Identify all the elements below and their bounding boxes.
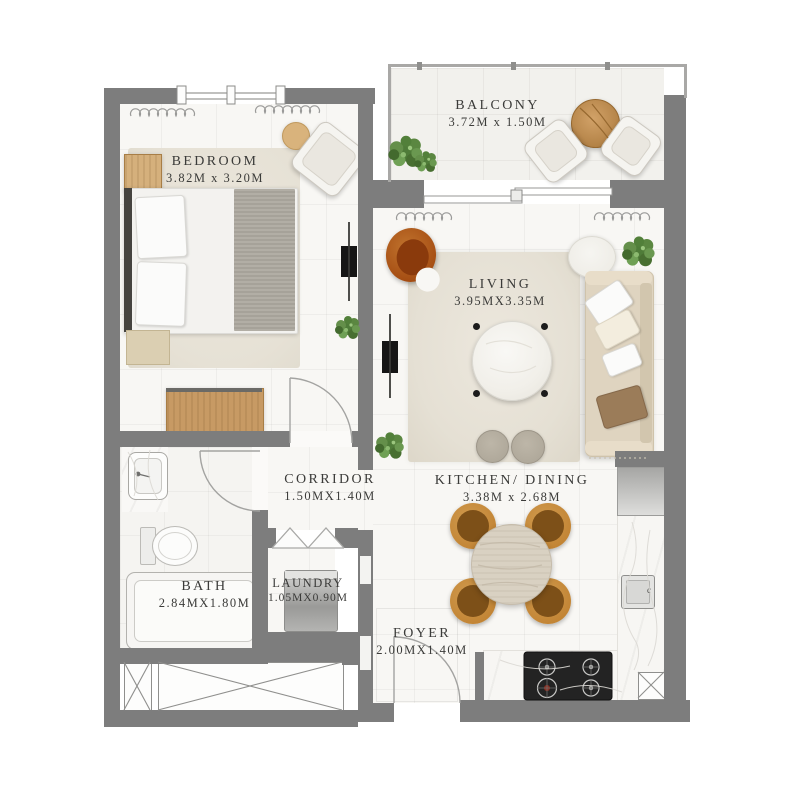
- floor-plan: c: [0, 0, 800, 800]
- rail-post: [511, 62, 516, 70]
- nightstand: [124, 154, 162, 192]
- bath-door-threshold: [252, 447, 268, 510]
- bed-bench: [126, 330, 170, 365]
- bath-sink-icon: [128, 452, 168, 500]
- balcony-rail-right: [684, 64, 687, 98]
- wall-filler: [342, 648, 358, 665]
- sliding-door-icon: [424, 188, 612, 203]
- toilet-icon: [152, 526, 198, 566]
- dresser-back-edge: [166, 388, 262, 392]
- wall-foyer-bottom: [358, 703, 394, 722]
- wall-top-right: [281, 88, 375, 104]
- bed-pillow: [135, 261, 187, 327]
- bathtub-icon: [126, 572, 262, 650]
- living-tv-icon: [382, 341, 398, 373]
- bed-pillow: [134, 195, 187, 260]
- wall-bottom-right: [460, 700, 690, 722]
- wall-bedroom-living: [358, 104, 373, 470]
- bedroom-window-icon: [177, 86, 285, 104]
- sink-marking: c: [647, 585, 651, 595]
- wall-bedroom-corridor: [352, 431, 373, 447]
- wall-laundry-stub-left: [252, 528, 276, 548]
- wall-bottom-left: [104, 710, 358, 727]
- foyer-boundary: [376, 608, 458, 702]
- bifold-door-icon: [272, 528, 344, 548]
- kitchen-sink-icon: c: [621, 575, 655, 609]
- table-leg: [541, 323, 548, 330]
- living-pouf: [511, 430, 545, 464]
- coffee-table: [472, 321, 552, 401]
- wall-left-outer: [104, 88, 120, 727]
- bedroom-tv-icon: [341, 246, 357, 277]
- wall-balcony-bottom-right: [610, 180, 664, 208]
- service-shaft: [158, 662, 344, 712]
- balcony-rail-top: [388, 64, 686, 67]
- foyer-wall-niche: [360, 556, 371, 584]
- service-shaft: [124, 662, 152, 712]
- washing-machine-icon: [284, 570, 338, 632]
- rail-post: [417, 62, 422, 70]
- living-pouf: [476, 430, 509, 463]
- table-leg: [473, 390, 480, 397]
- service-shaft: [638, 672, 666, 700]
- bedroom-door-threshold: [290, 431, 352, 447]
- wall-laundry-stub-right: [335, 528, 358, 548]
- wall-kitchen-stub: [615, 451, 664, 467]
- wall-balcony-corner: [358, 180, 424, 208]
- bed-headboard: [124, 188, 132, 332]
- table-leg: [473, 323, 480, 330]
- wall-bedroom-bath: [120, 431, 290, 447]
- wall-counter-stub: [475, 652, 484, 702]
- dining-table: [471, 524, 552, 605]
- wall-top-left: [104, 88, 182, 104]
- bed-blanket: [234, 189, 295, 331]
- table-leg: [541, 390, 548, 397]
- foyer-wall-niche: [360, 636, 371, 670]
- rail-post: [605, 62, 610, 70]
- wall-bath-bottom: [120, 648, 268, 664]
- balcony-rail-left: [388, 64, 391, 182]
- wall-right-outer: [664, 95, 686, 705]
- dresser: [166, 388, 264, 434]
- fridge-icon: [617, 467, 666, 516]
